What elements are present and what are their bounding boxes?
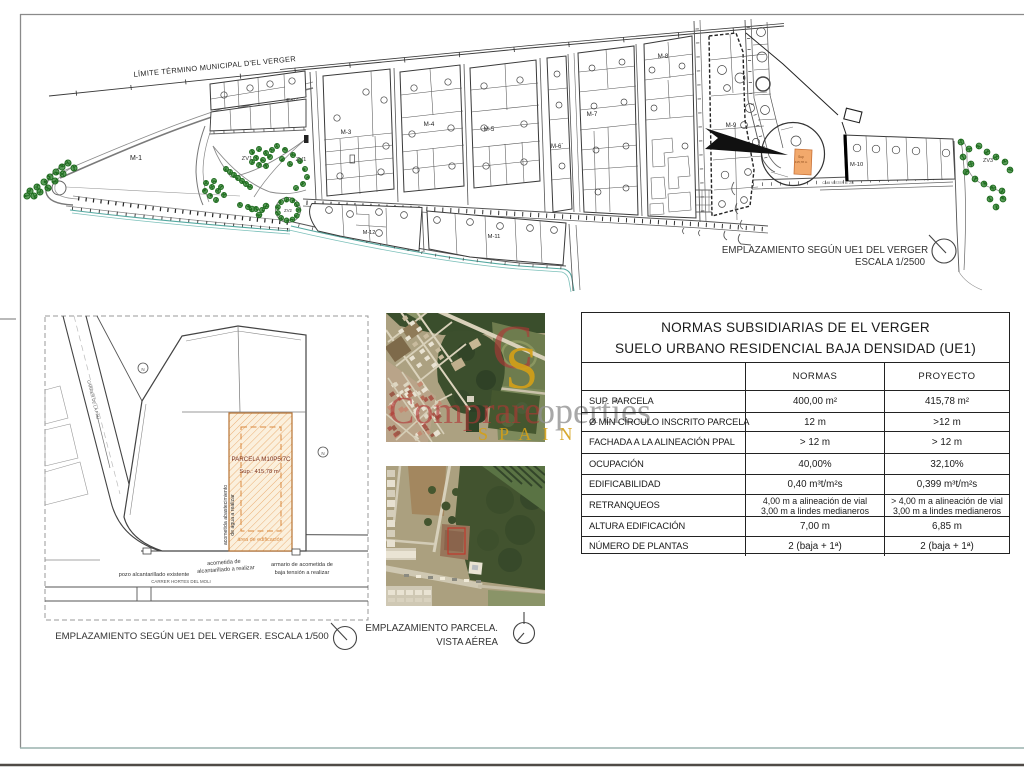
svg-text:ZV1: ZV1 (242, 156, 253, 162)
svg-text:N: N (141, 367, 144, 372)
svg-text:Sup.: 415,78 m²: Sup.: 415,78 m² (239, 469, 280, 475)
svg-text:área de edificación: área de edificación (237, 537, 282, 543)
svg-text:acometida abastecimiento: acometida abastecimiento (223, 485, 229, 545)
svg-text:baja tensión a realizar: baja tensión a realizar (275, 570, 330, 576)
svg-text:M-4: M-4 (424, 121, 435, 128)
svg-text:M-3: M-3 (341, 129, 352, 136)
svg-text:Sup: Sup (798, 155, 804, 159)
svg-text:ZV2: ZV2 (284, 208, 292, 213)
svg-text:M-1: M-1 (130, 155, 142, 162)
svg-text:EMPLAZAMIENTO PARCELA.: EMPLAZAMIENTO PARCELA. (365, 623, 498, 634)
svg-text:M-10: M-10 (850, 162, 863, 168)
svg-text:M-7: M-7 (587, 111, 598, 118)
svg-text:ESCALA 1/2500: ESCALA 1/2500 (855, 257, 926, 268)
svg-text:N: N (321, 451, 324, 456)
svg-text:415,78 m: 415,78 m (795, 160, 808, 164)
svg-text:M-12: M-12 (363, 230, 376, 236)
svg-text:SPAIN: SPAIN (478, 424, 583, 444)
svg-text:M-5: M-5 (484, 126, 495, 133)
svg-text:PARCELA M10P5/7C: PARCELA M10P5/7C (231, 456, 291, 463)
svg-text:de agua a realizar: de agua a realizar (230, 494, 236, 536)
svg-text:M-8: M-8 (658, 53, 669, 60)
svg-text:armario de acometida de: armario de acometida de (271, 562, 333, 568)
svg-text:M-6´: M-6´ (551, 144, 563, 150)
svg-text:alcantarillado a realizar: alcantarillado a realizar (197, 565, 255, 575)
svg-text:EMPLAZAMIENTO SEGÚN UE1 DEL V: EMPLAZAMIENTO SEGÚN UE1 DEL VERGER. ESCA… (55, 631, 329, 642)
svg-text:CAMI VESTER M. 2/8: CAMI VESTER M. 2/8 (822, 181, 854, 185)
svg-text:ZV1: ZV1 (296, 157, 307, 163)
svg-text:M-9: M-9 (726, 122, 737, 129)
svg-text:EMPLAZAMIENTO SEGÚN UE1 DEL V: EMPLAZAMIENTO SEGÚN UE1 DEL VERGER (722, 245, 928, 256)
svg-text:M-11: M-11 (488, 234, 501, 240)
svg-text:ZV3: ZV3 (983, 158, 993, 164)
svg-text:pozo alcantarillado existente: pozo alcantarillado existente (119, 572, 190, 578)
svg-text:VISTA AÉREA: VISTA AÉREA (436, 637, 498, 648)
svg-text:CARRER HORTES DEL MOLI: CARRER HORTES DEL MOLI (151, 579, 211, 584)
